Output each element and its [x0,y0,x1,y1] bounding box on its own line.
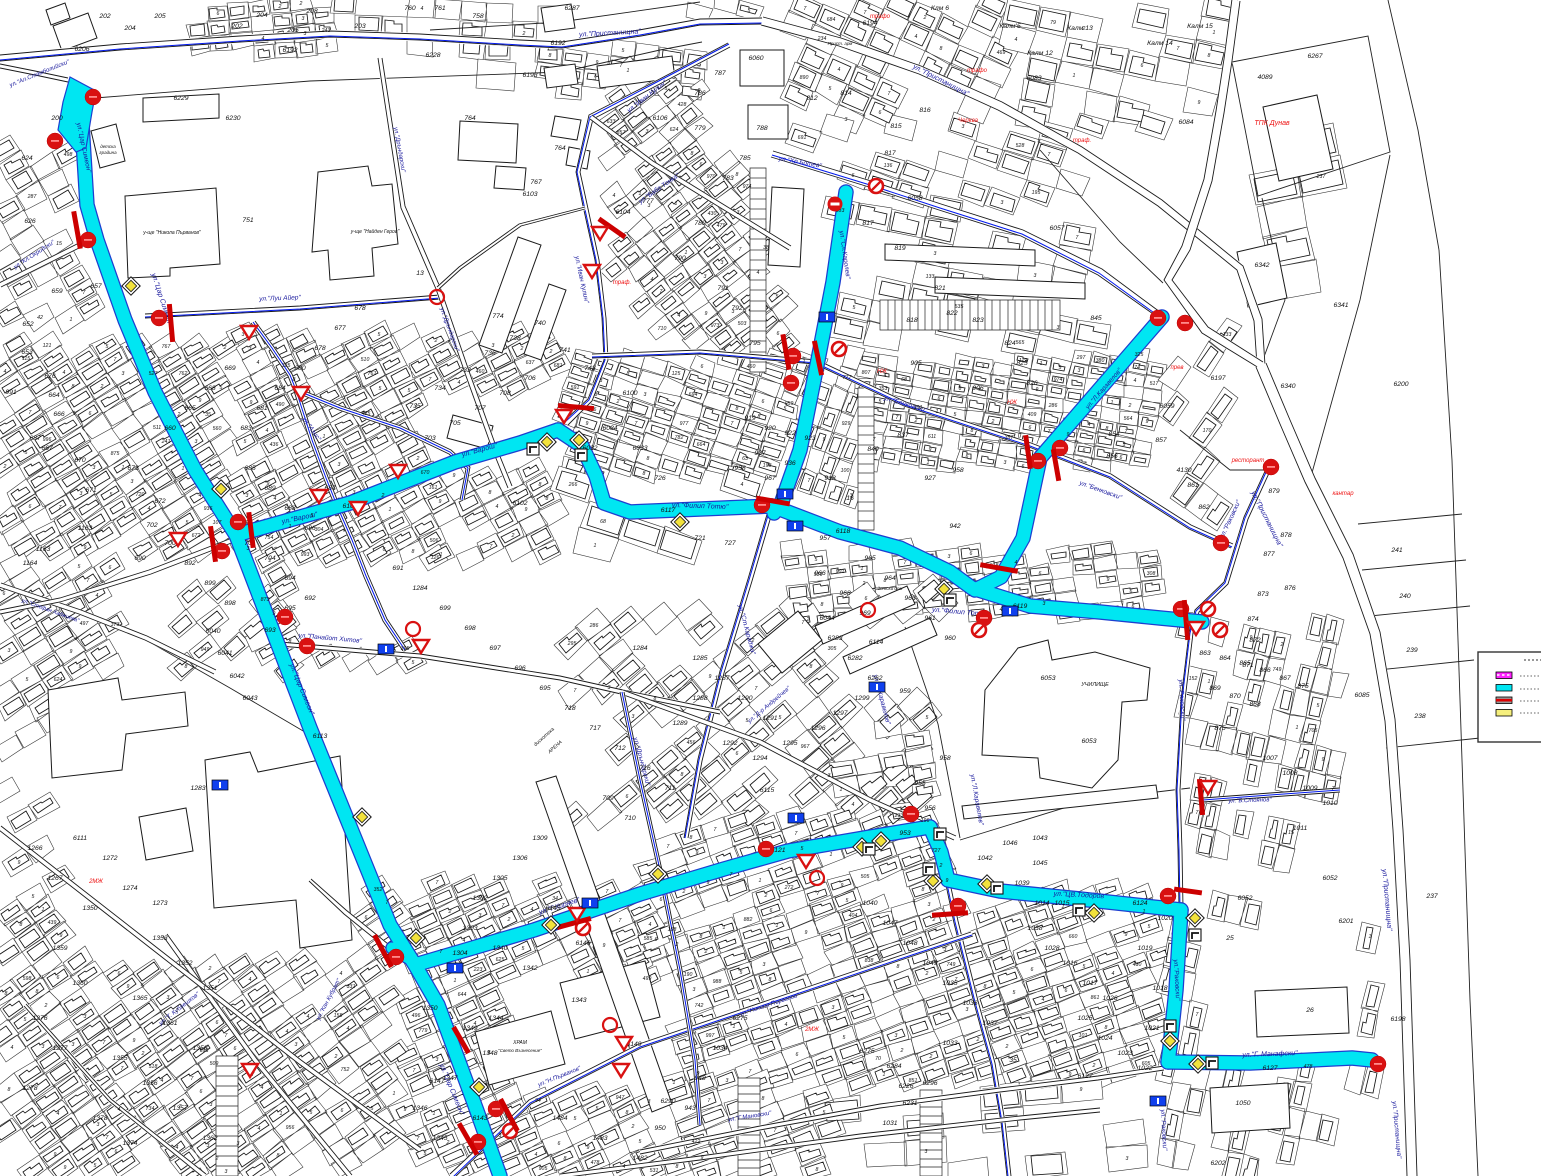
svg-text:870: 870 [1229,693,1241,700]
svg-text:6113: 6113 [313,733,328,740]
svg-text:5: 5 [879,399,882,405]
svg-text:681: 681 [554,363,563,369]
svg-text:6290: 6290 [660,1098,675,1105]
svg-text:3: 3 [492,343,495,349]
svg-text:1018: 1018 [1152,985,1167,992]
svg-text:5: 5 [740,970,743,976]
svg-text:1285: 1285 [692,655,707,662]
svg-text:814: 814 [840,90,852,97]
svg-text:678: 678 [314,345,326,352]
svg-text:6124: 6124 [1132,900,1147,907]
svg-text:6053: 6053 [1040,675,1055,682]
svg-text:15: 15 [1288,830,1294,836]
svg-text:666: 666 [53,411,65,418]
svg-text:286: 286 [1048,403,1058,409]
svg-text:9: 9 [596,60,599,66]
svg-text:9: 9 [707,880,710,886]
svg-text:1: 1 [733,1024,736,1030]
svg-text:125: 125 [672,371,681,377]
svg-text:703: 703 [424,435,436,442]
svg-text:693: 693 [264,627,276,634]
svg-text:8: 8 [758,414,761,420]
svg-text:6: 6 [216,1020,219,1026]
svg-text:409: 409 [1028,412,1037,418]
svg-text:1008: 1008 [1282,770,1297,777]
svg-text:3: 3 [210,1102,213,1108]
svg-text:478: 478 [591,1160,600,1166]
svg-text:3: 3 [84,1014,87,1020]
svg-text:5: 5 [220,385,223,391]
svg-text:705: 705 [1309,728,1318,734]
svg-text:1: 1 [433,1111,436,1117]
svg-text:9: 9 [18,860,21,866]
svg-text:905: 905 [539,1166,548,1172]
svg-text:1045: 1045 [1032,860,1047,867]
svg-text:8: 8 [293,377,296,383]
svg-text:8: 8 [20,922,23,928]
svg-text:1031: 1031 [882,1120,897,1127]
svg-text:6: 6 [770,908,773,914]
svg-text:373: 373 [111,622,120,628]
svg-text:1362: 1362 [202,1135,217,1142]
svg-text:4: 4 [1042,997,1045,1003]
svg-text:436: 436 [270,442,279,448]
svg-text:9: 9 [250,400,253,406]
svg-text:1163: 1163 [78,525,93,532]
svg-text:4: 4 [458,380,461,386]
svg-text:898: 898 [224,600,236,607]
svg-text:942: 942 [949,523,961,530]
svg-text:9: 9 [805,930,808,936]
svg-text:287: 287 [27,194,38,200]
svg-text:3: 3 [966,1007,969,1013]
svg-text:862: 862 [1198,504,1210,511]
svg-text:70: 70 [875,1056,881,1062]
svg-text:9: 9 [70,649,73,655]
svg-text:710: 710 [624,815,636,822]
svg-text:1: 1 [803,359,806,365]
svg-text:25: 25 [1225,935,1234,942]
svg-text:3: 3 [246,493,249,499]
svg-text:787: 787 [714,70,726,77]
svg-text:707: 707 [474,405,486,412]
svg-text:детски дом: детски дом [878,586,903,591]
svg-text:509: 509 [210,1061,219,1067]
svg-text:304: 304 [315,527,324,533]
svg-text:711: 711 [665,785,676,792]
svg-text:8: 8 [884,578,887,584]
svg-text:764: 764 [464,115,476,122]
svg-text:503: 503 [738,321,747,327]
svg-text:4: 4 [741,482,744,488]
svg-text:5: 5 [1013,990,1016,996]
svg-text:1: 1 [70,317,73,323]
svg-text:958: 958 [952,467,964,474]
svg-text:1: 1 [122,465,125,471]
svg-text:ТПК Дунав: ТПК Дунав [1254,120,1290,127]
svg-text:6127: 6127 [1262,1065,1277,1072]
svg-text:5: 5 [1083,964,1086,970]
svg-text:2: 2 [141,1051,145,1057]
svg-text:8: 8 [564,1156,567,1162]
svg-text:693: 693 [200,1048,209,1054]
svg-text:158: 158 [668,927,677,933]
svg-text:1: 1 [415,403,418,409]
svg-text:9: 9 [1146,419,1149,425]
svg-text:3: 3 [195,439,198,445]
svg-text:НЖ: НЖ [1007,400,1017,406]
svg-text:6230: 6230 [225,115,240,122]
svg-text:2: 2 [764,893,768,899]
svg-text:565: 565 [1016,340,1025,346]
svg-text:3: 3 [600,378,603,384]
svg-text:1378: 1378 [92,1115,107,1122]
svg-text:6229: 6229 [173,95,188,102]
svg-text:6033: 6033 [632,445,647,452]
svg-text:2: 2 [434,338,438,344]
svg-text:1359: 1359 [52,945,67,952]
svg-text:1356: 1356 [142,1080,157,1087]
svg-text:1: 1 [1040,361,1043,367]
svg-text:676: 676 [44,373,56,380]
svg-text:308: 308 [1147,571,1156,577]
svg-text:5: 5 [843,1035,846,1041]
svg-text:8: 8 [1106,426,1109,432]
svg-text:2: 2 [448,909,452,915]
svg-text:510: 510 [361,357,370,363]
svg-text:6104: 6104 [615,209,630,216]
svg-text:3: 3 [925,1149,928,1155]
svg-text:26: 26 [1305,1007,1314,1014]
svg-text:919: 919 [744,415,756,422]
svg-text:1276: 1276 [32,1015,47,1022]
svg-text:1: 1 [1213,30,1216,36]
svg-text:1: 1 [927,460,930,466]
svg-text:204: 204 [123,25,136,32]
svg-text:899: 899 [204,580,216,587]
svg-text:721: 721 [694,535,706,542]
svg-text:6: 6 [1031,967,1034,973]
svg-text:9: 9 [404,1107,407,1113]
svg-text:38: 38 [763,245,769,251]
svg-text:прев: прев [1170,365,1183,371]
svg-text:8: 8 [546,496,549,502]
svg-text:9: 9 [841,883,844,889]
svg-text:3: 3 [1078,368,1081,374]
svg-text:4: 4 [1015,560,1018,566]
svg-text:9: 9 [701,1155,704,1161]
svg-text:1009: 1009 [1302,785,1317,792]
svg-text:9: 9 [1322,757,1325,763]
svg-text:6267: 6267 [1307,53,1322,60]
svg-text:527: 527 [149,371,159,377]
svg-text:1050: 1050 [1235,1100,1250,1107]
svg-text:611: 611 [928,434,936,440]
svg-text:3: 3 [934,251,937,257]
svg-text:3: 3 [648,1099,651,1105]
svg-text:121: 121 [43,343,52,349]
svg-text:3: 3 [131,479,134,485]
svg-text:4: 4 [785,1022,788,1028]
svg-text:2МЖ: 2МЖ [804,1027,819,1033]
svg-text:6: 6 [762,399,765,405]
svg-text:6115: 6115 [760,787,775,794]
svg-text:6: 6 [796,1052,799,1058]
svg-text:927: 927 [924,475,936,482]
svg-text:1294: 1294 [752,755,767,762]
svg-text:5: 5 [522,946,525,952]
svg-text:710: 710 [658,326,667,332]
svg-text:1295: 1295 [782,740,797,747]
svg-text:1482: 1482 [632,1155,647,1162]
svg-text:4: 4 [258,1126,261,1132]
svg-text:8: 8 [626,1110,629,1116]
svg-text:709: 709 [602,795,614,802]
svg-text:101: 101 [1079,1033,1088,1039]
svg-text:857: 857 [617,130,627,136]
svg-text:1: 1 [723,925,726,931]
svg-text:6341: 6341 [1333,302,1348,309]
svg-text:8: 8 [736,172,739,178]
svg-text:286: 286 [589,623,599,629]
svg-text:749: 749 [947,962,956,968]
svg-text:505: 505 [861,874,870,880]
svg-text:3: 3 [499,1133,502,1139]
svg-text:238: 238 [1413,713,1426,720]
svg-text:560: 560 [213,426,222,432]
svg-text:5: 5 [622,48,625,54]
svg-text:6: 6 [1039,571,1042,577]
svg-text:866: 866 [1259,667,1271,674]
svg-text:6084: 6084 [1178,119,1193,126]
svg-text:3: 3 [436,1057,439,1063]
svg-text:3: 3 [948,554,951,560]
svg-text:Калм 12: Калм 12 [1027,50,1053,57]
svg-text:1278: 1278 [22,1085,37,1092]
svg-text:717: 717 [589,725,601,732]
svg-text:ХРАМ: ХРАМ [512,1040,528,1046]
svg-text:3: 3 [832,1005,835,1011]
svg-text:687: 687 [29,435,41,442]
svg-text:380: 380 [1096,358,1105,364]
svg-text:3: 3 [8,648,11,654]
svg-text:1: 1 [1296,725,1299,731]
svg-text:9: 9 [60,933,63,939]
svg-text:496: 496 [412,1013,421,1019]
svg-text:6143: 6143 [472,1115,487,1122]
svg-text:422: 422 [692,1139,701,1145]
svg-text:838: 838 [865,958,874,964]
svg-text:325: 325 [282,363,291,369]
svg-text:479: 479 [717,223,726,229]
svg-text:653: 653 [21,349,33,356]
svg-text:4: 4 [757,270,760,276]
svg-text:3: 3 [167,995,170,1001]
svg-text:681: 681 [256,405,268,412]
svg-text:Калм 13: Калм 13 [1067,25,1093,32]
svg-text:395: 395 [401,646,410,652]
svg-text:957: 957 [819,535,831,542]
svg-text:4: 4 [286,1029,289,1035]
svg-text:8: 8 [643,471,646,477]
svg-text:202: 202 [230,23,243,30]
svg-text:1: 1 [685,250,688,256]
svg-text:878: 878 [1280,532,1292,539]
svg-text:1: 1 [1369,934,1372,940]
svg-text:9: 9 [823,437,826,443]
svg-text:6052: 6052 [1237,895,1252,902]
svg-text:4: 4 [535,1152,538,1158]
svg-text:9: 9 [84,545,87,551]
svg-text:3: 3 [726,1078,729,1084]
svg-text:1: 1 [759,878,762,884]
svg-text:761: 761 [434,5,446,12]
svg-text:720: 720 [136,492,145,498]
svg-text:8: 8 [940,46,943,52]
svg-text:3: 3 [1057,325,1060,331]
svg-text:751: 751 [242,217,254,224]
svg-text:950: 950 [654,1125,666,1132]
svg-text:6146: 6146 [575,940,590,947]
svg-text:3: 3 [249,346,252,352]
svg-text:1036: 1036 [962,1000,977,1007]
svg-text:5: 5 [26,677,29,683]
svg-text:9: 9 [439,499,442,505]
svg-text:2: 2 [522,31,526,37]
svg-text:8: 8 [627,371,630,377]
svg-text:6340: 6340 [1280,383,1295,390]
svg-text:9: 9 [199,398,202,404]
svg-text:6296: 6296 [922,1080,937,1087]
svg-text:2МЖ: 2МЖ [88,879,103,885]
svg-text:9: 9 [697,1071,700,1077]
svg-text:585: 585 [644,936,653,942]
svg-text:5: 5 [815,557,818,563]
svg-text:743: 743 [584,365,596,372]
svg-text:1350: 1350 [422,1005,437,1012]
svg-text:624: 624 [21,155,33,162]
svg-text:8: 8 [185,664,188,670]
svg-text:3: 3 [644,392,647,398]
svg-text:738: 738 [509,335,521,342]
svg-text:6201: 6201 [1338,918,1353,925]
svg-text:498: 498 [64,152,73,158]
svg-text:867: 867 [1279,675,1291,682]
svg-text:733: 733 [459,367,471,374]
svg-text:876: 876 [1284,585,1296,592]
svg-text:857: 857 [1155,437,1167,444]
svg-text:1: 1 [627,68,630,74]
svg-text:6192: 6192 [282,47,297,54]
svg-text:1297: 1297 [832,710,847,717]
svg-text:8: 8 [595,392,598,398]
svg-text:9: 9 [929,447,932,453]
svg-text:716: 716 [639,765,651,772]
svg-text:726: 726 [654,475,666,482]
svg-text:203: 203 [353,23,366,30]
svg-text:506: 506 [430,538,439,544]
svg-text:4: 4 [623,1164,626,1170]
svg-text:детска: детска [100,144,116,149]
svg-text:1: 1 [454,978,457,984]
svg-text:652: 652 [22,321,34,328]
svg-text:1014: 1014 [1034,900,1049,907]
svg-text:8: 8 [647,456,650,462]
svg-text:6197: 6197 [1210,375,1225,382]
svg-text:Калм 14: Калм 14 [1147,40,1173,47]
svg-text:2: 2 [100,384,104,390]
svg-text:1007: 1007 [1262,755,1277,762]
svg-text:3: 3 [646,129,649,135]
svg-text:5: 5 [829,86,832,92]
svg-text:4: 4 [266,428,269,434]
svg-text:6: 6 [118,971,121,977]
svg-text:3: 3 [737,210,740,216]
svg-text:8: 8 [1208,53,1211,59]
svg-text:3: 3 [1034,273,1037,279]
svg-text:6282: 6282 [847,655,862,662]
svg-text:2: 2 [751,638,755,644]
svg-text:9: 9 [64,1165,67,1171]
svg-text:4: 4 [884,373,887,379]
svg-text:107: 107 [213,520,223,526]
svg-text:868: 868 [1249,701,1261,708]
svg-text:2: 2 [334,1054,338,1060]
svg-text:1: 1 [1111,400,1114,406]
svg-text:6058: 6058 [907,195,922,202]
svg-text:9: 9 [273,611,276,617]
svg-text:1: 1 [289,524,292,530]
svg-text:688: 688 [284,505,296,512]
svg-text:8: 8 [816,1167,819,1173]
svg-text:9: 9 [946,878,949,884]
svg-text:2: 2 [208,966,212,972]
svg-text:4: 4 [678,313,681,319]
svg-text:6: 6 [365,915,368,921]
svg-text:5: 5 [78,564,81,570]
svg-text:1284: 1284 [412,585,427,592]
svg-text:5: 5 [110,492,113,498]
svg-text:727: 727 [724,540,736,547]
svg-text:685: 685 [244,465,256,472]
svg-text:749: 749 [1273,667,1282,673]
svg-text:1340: 1340 [492,945,507,952]
svg-text:1042: 1042 [977,855,992,862]
svg-text:6: 6 [966,454,969,460]
svg-text:кантар: кантар [1332,491,1354,497]
svg-text:3: 3 [693,987,696,993]
svg-text:205: 205 [153,13,166,20]
svg-text:295: 295 [567,641,577,647]
svg-text:6: 6 [777,331,780,337]
svg-text:1306: 1306 [512,855,527,862]
svg-text:3: 3 [225,1169,228,1175]
svg-text:2: 2 [416,456,420,462]
svg-text:1272: 1272 [102,855,117,862]
svg-text:1: 1 [182,466,185,472]
svg-text:869: 869 [1209,685,1221,692]
svg-text:1039: 1039 [1014,880,1029,887]
svg-text:659: 659 [51,288,63,295]
svg-text:742: 742 [695,1003,704,1009]
svg-text:761: 761 [368,371,377,377]
svg-text:856: 856 [1106,453,1118,460]
svg-text:918: 918 [824,475,836,482]
svg-text:6111: 6111 [73,835,87,842]
svg-text:1350: 1350 [82,905,97,912]
svg-text:6193: 6193 [522,72,537,79]
svg-text:94: 94 [535,1098,541,1104]
